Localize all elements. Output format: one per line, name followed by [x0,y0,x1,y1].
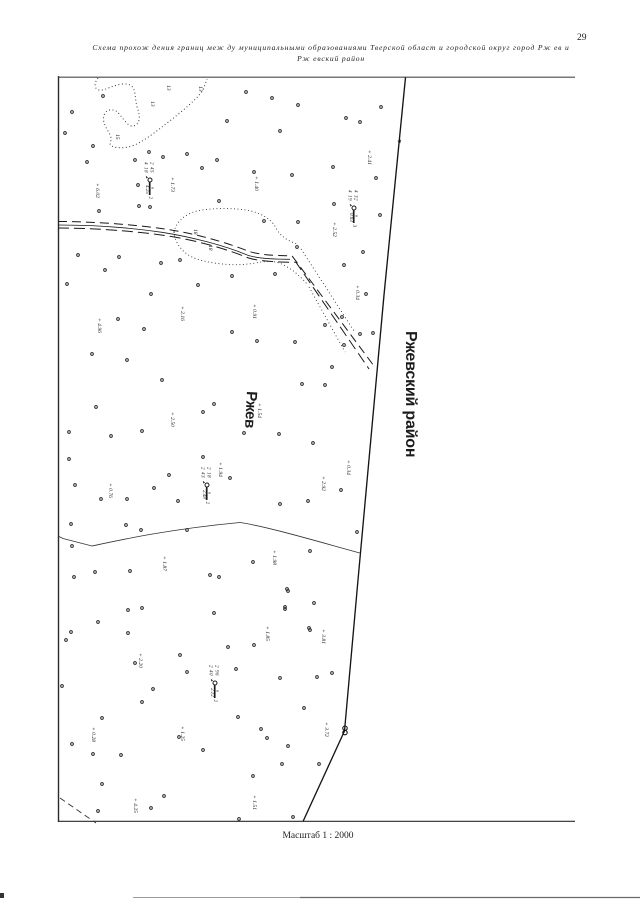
svg-text:+ 1.73: + 1.73 [169,177,175,192]
svg-text:+ 2.50: + 2.50 [169,412,175,427]
svg-text:+ 0.76: + 0.76 [107,483,113,498]
svg-text:+ 4.25: + 4.25 [132,798,138,813]
svg-text:+ 1.87: + 1.87 [161,556,167,571]
svg-text:+ 1.54: + 1.54 [256,403,262,418]
svg-text:+ 2.20: + 2.20 [137,653,143,668]
svg-text:+ 1.25: + 1.25 [179,726,185,741]
svg-text:+ 4.96: + 4.96 [96,318,102,333]
svg-text:+ 1.98: + 1.98 [271,550,277,565]
svg-text:29: 29 [577,33,587,43]
svg-text:Схема прохож дения границ меж: Схема прохож дения границ меж ду муницип… [92,43,569,52]
svg-text:+ 1.51: + 1.51 [251,795,257,810]
svg-text:4 32: 4 32 [353,190,358,201]
svg-text:4.25: 4.25 [144,185,149,194]
svg-text:Рж евский район: Рж евский район [296,54,365,63]
svg-text:13: 13 [165,85,171,91]
svg-text:+ 0.28: + 0.28 [90,727,96,742]
svg-text:15: 15 [114,134,120,140]
svg-text:13: 13 [197,86,203,92]
svg-text:2.12: 2.12 [209,688,214,697]
svg-text:2 45: 2 45 [149,162,154,173]
svg-text:+ 1.85: + 1.85 [264,626,270,641]
svg-text:4 19: 4 19 [347,190,352,201]
svg-text:+ 2.52: + 2.52 [331,222,337,237]
svg-text:Ржевский район: Ржевский район [402,331,419,457]
svg-text:+ 0.34: + 0.34 [354,285,360,300]
svg-text:13: 13 [149,101,155,107]
svg-text:+ 1.40: + 1.40 [253,176,259,191]
svg-text:+ 2.16: + 2.16 [179,306,185,321]
svg-text:2 18: 2 18 [206,467,211,478]
svg-text:+ 0.34: + 0.34 [345,460,351,475]
svg-text:4 18: 4 18 [143,162,148,173]
svg-text:0.63: 0.63 [348,213,353,222]
svg-text:18: 18 [207,245,213,251]
svg-text:2.48: 2.48 [201,490,206,499]
svg-text:18: 18 [192,229,198,235]
svg-text:+ 2.41: + 2.41 [366,150,372,165]
svg-text:Масштаб 1 : 2000: Масштаб 1 : 2000 [282,830,353,841]
svg-text:2 43: 2 43 [200,467,205,478]
svg-text:2 96: 2 96 [214,665,219,676]
svg-text:+ 0.91: + 0.91 [251,304,257,319]
svg-text:2 40: 2 40 [208,665,213,676]
svg-text:+ 3.72: + 3.72 [323,722,329,737]
svg-text:+ 6.02: + 6.02 [94,183,100,198]
svg-text:+ 3.81: + 3.81 [320,629,326,644]
svg-text:+ 1.94: + 1.94 [217,462,223,477]
svg-text:+ 2.92: + 2.92 [320,476,326,491]
